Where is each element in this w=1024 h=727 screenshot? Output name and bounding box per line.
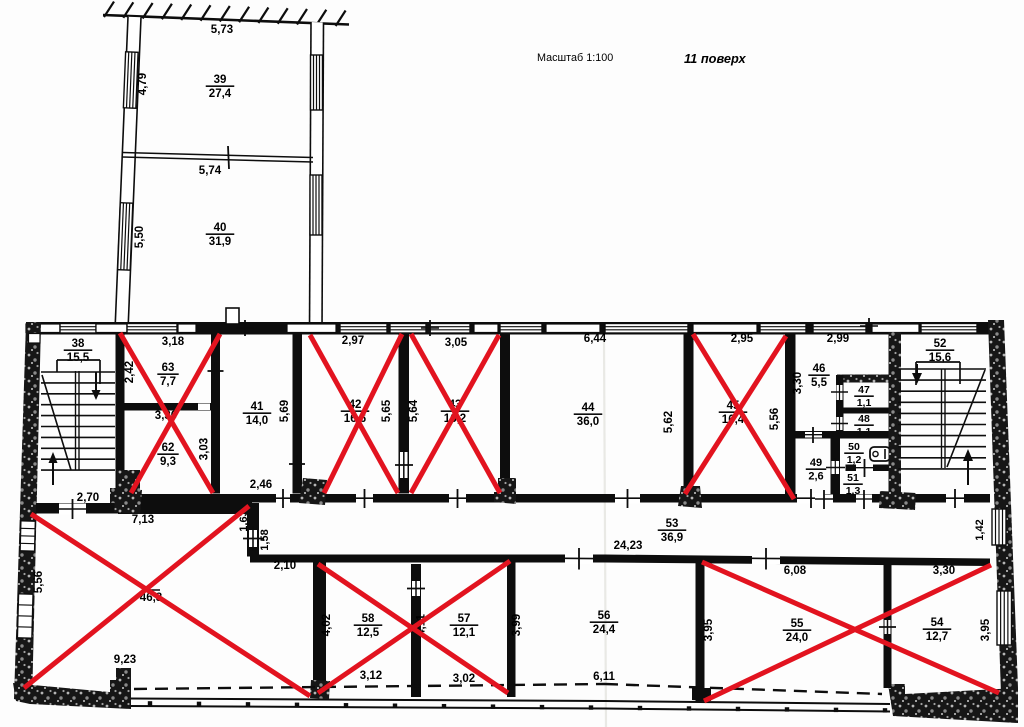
svg-text:39: 39 (214, 74, 227, 86)
svg-text:2,42: 2,42 (124, 361, 136, 383)
svg-text:2,6: 2,6 (808, 471, 823, 483)
svg-text:49: 49 (810, 457, 822, 469)
svg-text:5,69: 5,69 (279, 400, 291, 422)
svg-text:56: 56 (598, 610, 611, 622)
svg-text:53: 53 (666, 518, 679, 530)
svg-text:11 поверх: 11 поверх (684, 51, 746, 66)
svg-text:24,0: 24,0 (786, 632, 808, 644)
svg-text:9,23: 9,23 (114, 654, 136, 666)
svg-text:52: 52 (934, 338, 947, 350)
svg-text:4,79: 4,79 (137, 73, 149, 95)
svg-text:5,65: 5,65 (381, 399, 393, 422)
svg-text:27,4: 27,4 (209, 88, 232, 100)
svg-text:51: 51 (847, 472, 859, 484)
svg-text:3,99: 3,99 (511, 614, 523, 636)
svg-text:41: 41 (251, 401, 264, 413)
svg-text:4,02: 4,02 (321, 614, 333, 636)
svg-text:58: 58 (362, 613, 375, 625)
svg-text:15,5: 15,5 (67, 352, 90, 364)
svg-text:2,10: 2,10 (274, 560, 296, 572)
svg-text:2,97: 2,97 (342, 335, 364, 347)
svg-text:5,56: 5,56 (33, 571, 45, 593)
svg-text:1,42: 1,42 (974, 519, 986, 540)
svg-text:47: 47 (858, 384, 870, 396)
svg-text:3,30: 3,30 (933, 565, 955, 577)
svg-text:6,44: 6,44 (584, 333, 607, 345)
svg-text:1,1: 1,1 (857, 397, 872, 409)
svg-text:3,18: 3,18 (162, 336, 185, 348)
svg-text:5,64: 5,64 (408, 399, 420, 422)
svg-text:3,30: 3,30 (792, 372, 804, 394)
svg-text:6,11: 6,11 (593, 671, 615, 683)
svg-text:57: 57 (458, 613, 471, 625)
svg-text:2,70: 2,70 (77, 492, 99, 504)
svg-text:7,13: 7,13 (132, 514, 154, 526)
svg-text:Масштаб 1:100: Масштаб 1:100 (537, 52, 613, 64)
svg-text:3,95: 3,95 (703, 618, 715, 641)
svg-text:9,3: 9,3 (160, 456, 176, 468)
svg-text:3,02: 3,02 (453, 673, 475, 685)
svg-text:40: 40 (214, 222, 227, 234)
svg-text:2,99: 2,99 (827, 333, 849, 345)
svg-text:50: 50 (848, 441, 860, 453)
svg-text:38: 38 (72, 338, 85, 350)
svg-text:5,74: 5,74 (199, 165, 222, 177)
svg-text:46: 46 (813, 363, 826, 375)
svg-text:14,0: 14,0 (246, 415, 268, 427)
svg-text:55: 55 (791, 618, 804, 630)
svg-text:5,73: 5,73 (211, 24, 233, 36)
svg-text:36,0: 36,0 (577, 416, 599, 428)
svg-text:2,46: 2,46 (250, 479, 272, 491)
svg-text:62: 62 (162, 442, 175, 454)
svg-text:5,62: 5,62 (663, 411, 675, 433)
svg-text:24,4: 24,4 (593, 624, 616, 636)
svg-text:5,56: 5,56 (769, 408, 781, 430)
svg-text:6,08: 6,08 (784, 565, 807, 577)
svg-text:63: 63 (162, 362, 175, 374)
svg-text:5,50: 5,50 (134, 226, 146, 248)
svg-text:12,5: 12,5 (357, 627, 380, 639)
svg-text:3,12: 3,12 (360, 670, 382, 682)
svg-text:12,7: 12,7 (926, 631, 948, 643)
svg-text:54: 54 (931, 617, 944, 629)
svg-text:36,9: 36,9 (661, 532, 683, 544)
svg-text:3,95: 3,95 (980, 618, 992, 641)
svg-text:44: 44 (582, 402, 595, 414)
svg-text:2,95: 2,95 (731, 333, 754, 345)
svg-text:3,05: 3,05 (445, 337, 468, 349)
svg-text:12,1: 12,1 (453, 627, 476, 639)
svg-text:48: 48 (858, 413, 870, 425)
svg-text:31,9: 31,9 (209, 236, 231, 248)
svg-text:7,7: 7,7 (160, 376, 176, 388)
svg-text:3,03: 3,03 (199, 438, 211, 460)
svg-text:24,23: 24,23 (614, 540, 643, 552)
svg-text:1,58: 1,58 (259, 529, 271, 550)
svg-text:5,5: 5,5 (811, 377, 828, 389)
